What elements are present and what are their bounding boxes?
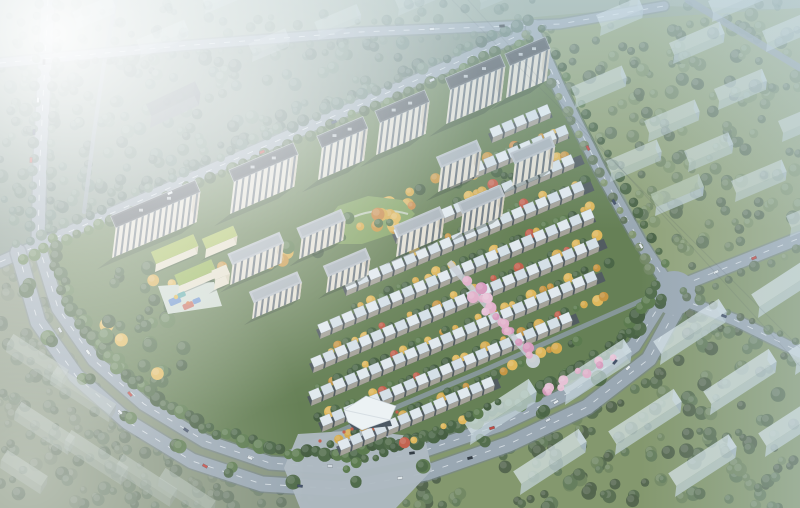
atmospheric-haze-overlay [0, 0, 800, 508]
aerial-rendering-stage [0, 0, 800, 508]
sun-glare-top-left [0, 0, 800, 508]
residential-masterplan-aerial-rendering [0, 0, 800, 508]
